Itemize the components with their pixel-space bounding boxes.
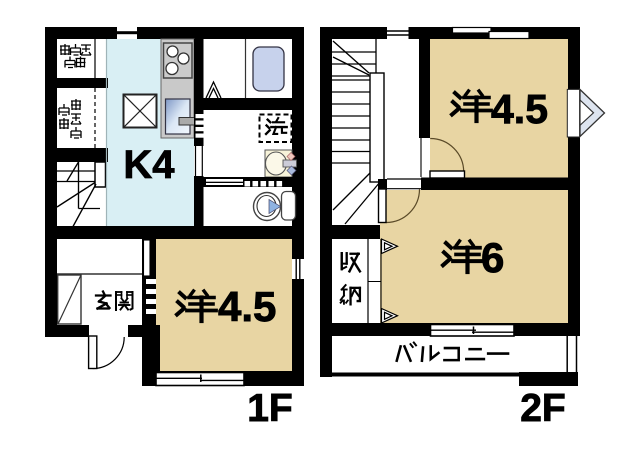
svg-text:2F: 2F: [520, 387, 566, 430]
svg-text:4.5: 4.5: [491, 86, 548, 132]
svg-text:4.5: 4.5: [218, 283, 276, 330]
svg-text:6: 6: [481, 234, 504, 281]
svg-text:K4: K4: [123, 143, 175, 187]
svg-text:1F: 1F: [247, 387, 293, 430]
